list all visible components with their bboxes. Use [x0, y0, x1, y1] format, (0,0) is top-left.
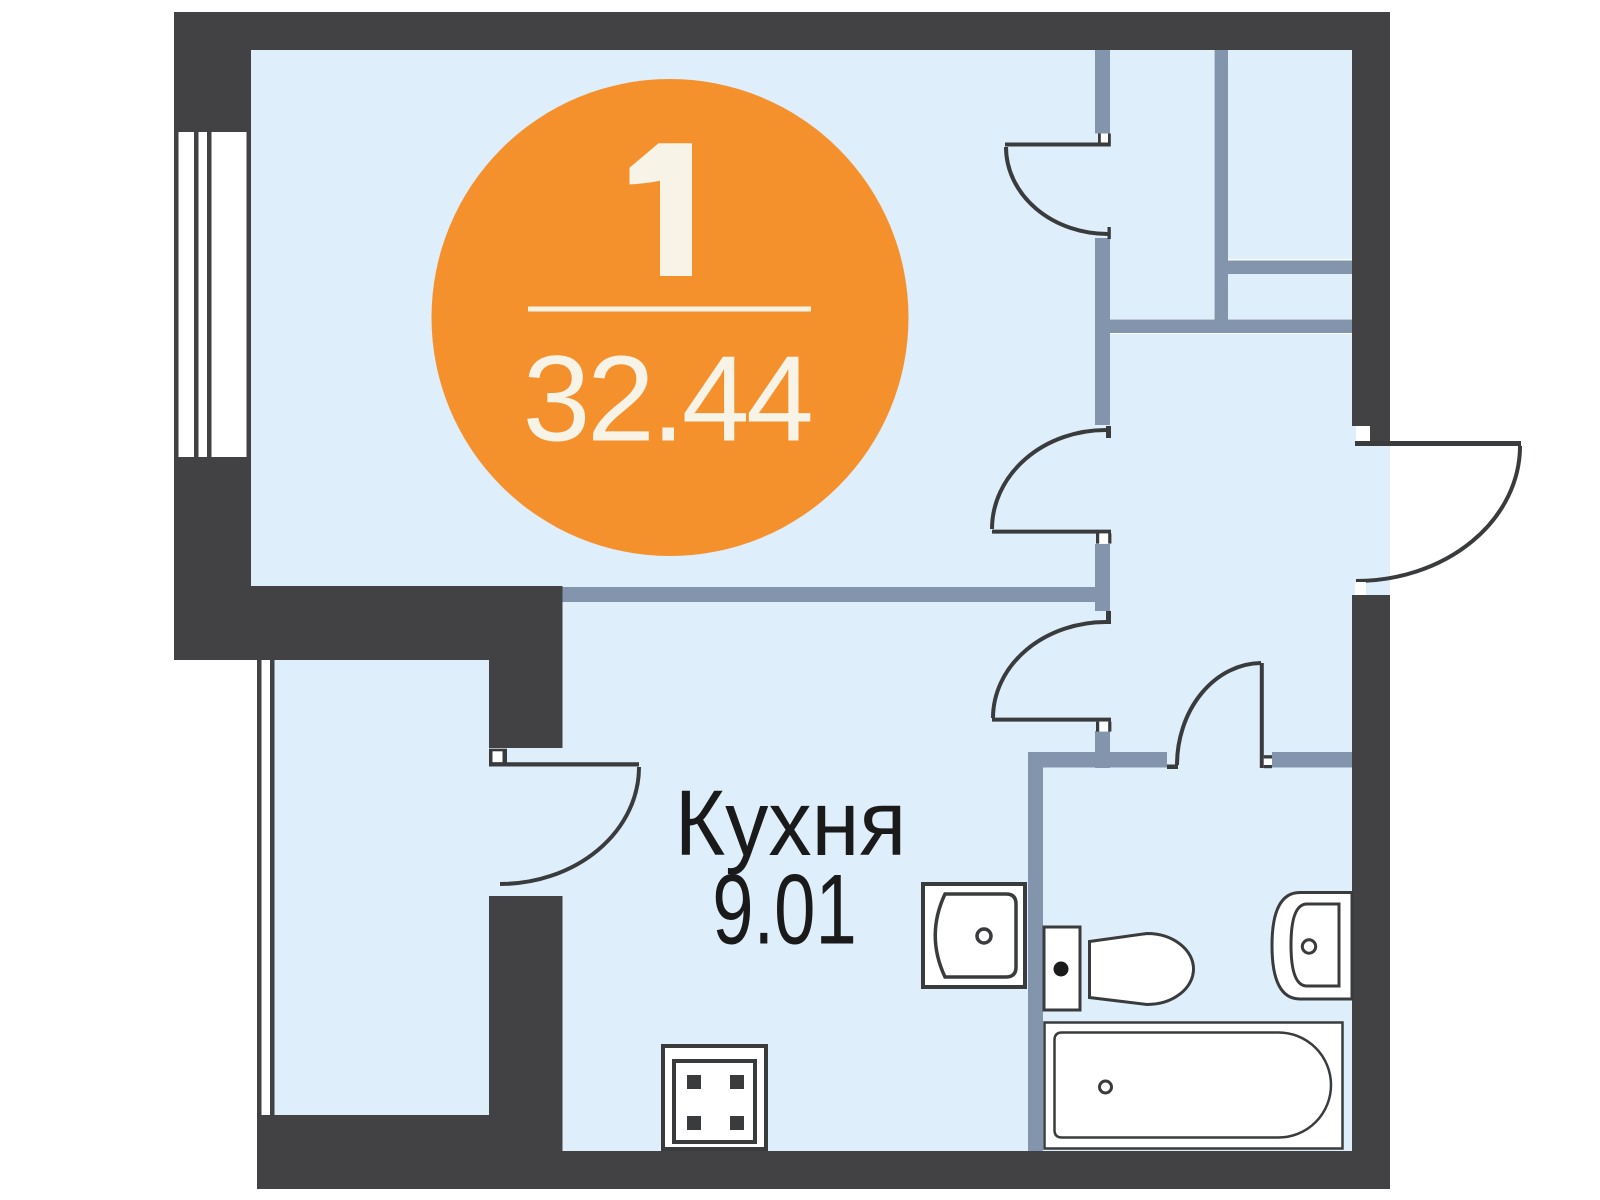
svg-text:32.44: 32.44	[523, 331, 811, 467]
svg-text:9.01: 9.01	[712, 854, 857, 965]
